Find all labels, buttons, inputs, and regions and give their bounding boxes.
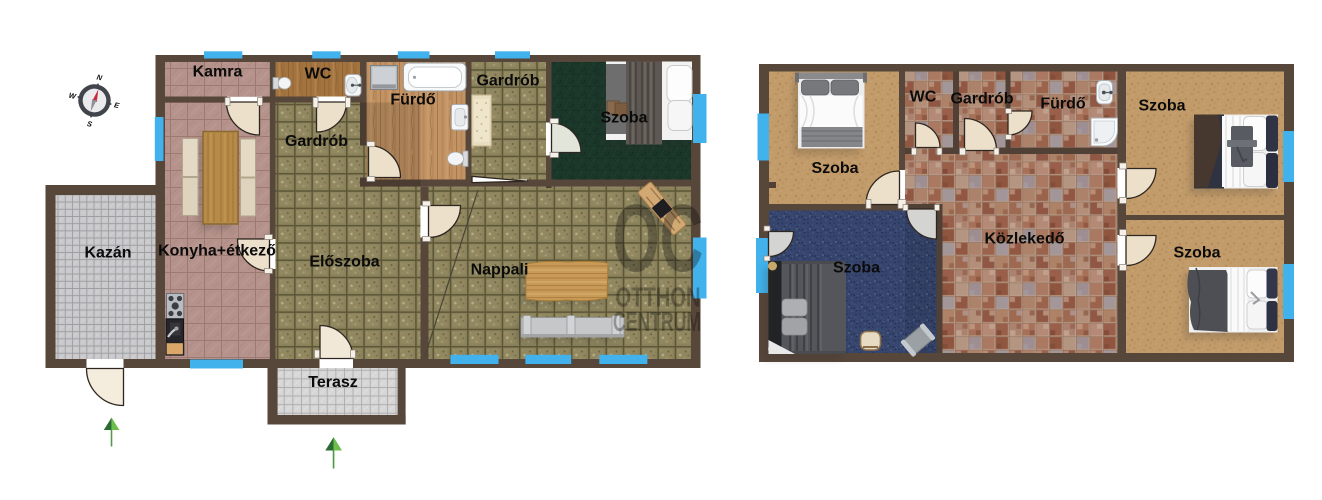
svg-text:Közlekedő: Közlekedő [984, 231, 1064, 248]
svg-text:WC: WC [910, 89, 937, 106]
svg-text:Gardrób: Gardrób [285, 133, 348, 150]
svg-text:WC: WC [305, 66, 332, 83]
svg-text:Fürdő: Fürdő [390, 92, 436, 109]
svg-text:Fürdő: Fürdő [1040, 96, 1086, 113]
svg-text:Kamra: Kamra [193, 64, 243, 81]
svg-text:Szoba: Szoba [600, 110, 647, 127]
svg-text:Terasz: Terasz [308, 374, 358, 391]
svg-text:Gardrób: Gardrób [476, 73, 539, 90]
svg-text:Előszoba: Előszoba [309, 254, 379, 271]
svg-text:Konyha+étkező: Konyha+étkező [158, 243, 276, 260]
svg-text:Nappali: Nappali [471, 262, 529, 279]
svg-text:Kazán: Kazán [84, 245, 131, 262]
svg-text:Szoba: Szoba [1173, 245, 1220, 262]
svg-text:CENTRUM: CENTRUM [613, 306, 701, 337]
svg-text:Gardrób: Gardrób [950, 91, 1013, 108]
svg-text:OC: OC [613, 185, 704, 293]
svg-text:Szoba: Szoba [1138, 98, 1185, 115]
svg-text:Szoba: Szoba [811, 160, 858, 177]
svg-text:Szoba: Szoba [833, 260, 880, 277]
